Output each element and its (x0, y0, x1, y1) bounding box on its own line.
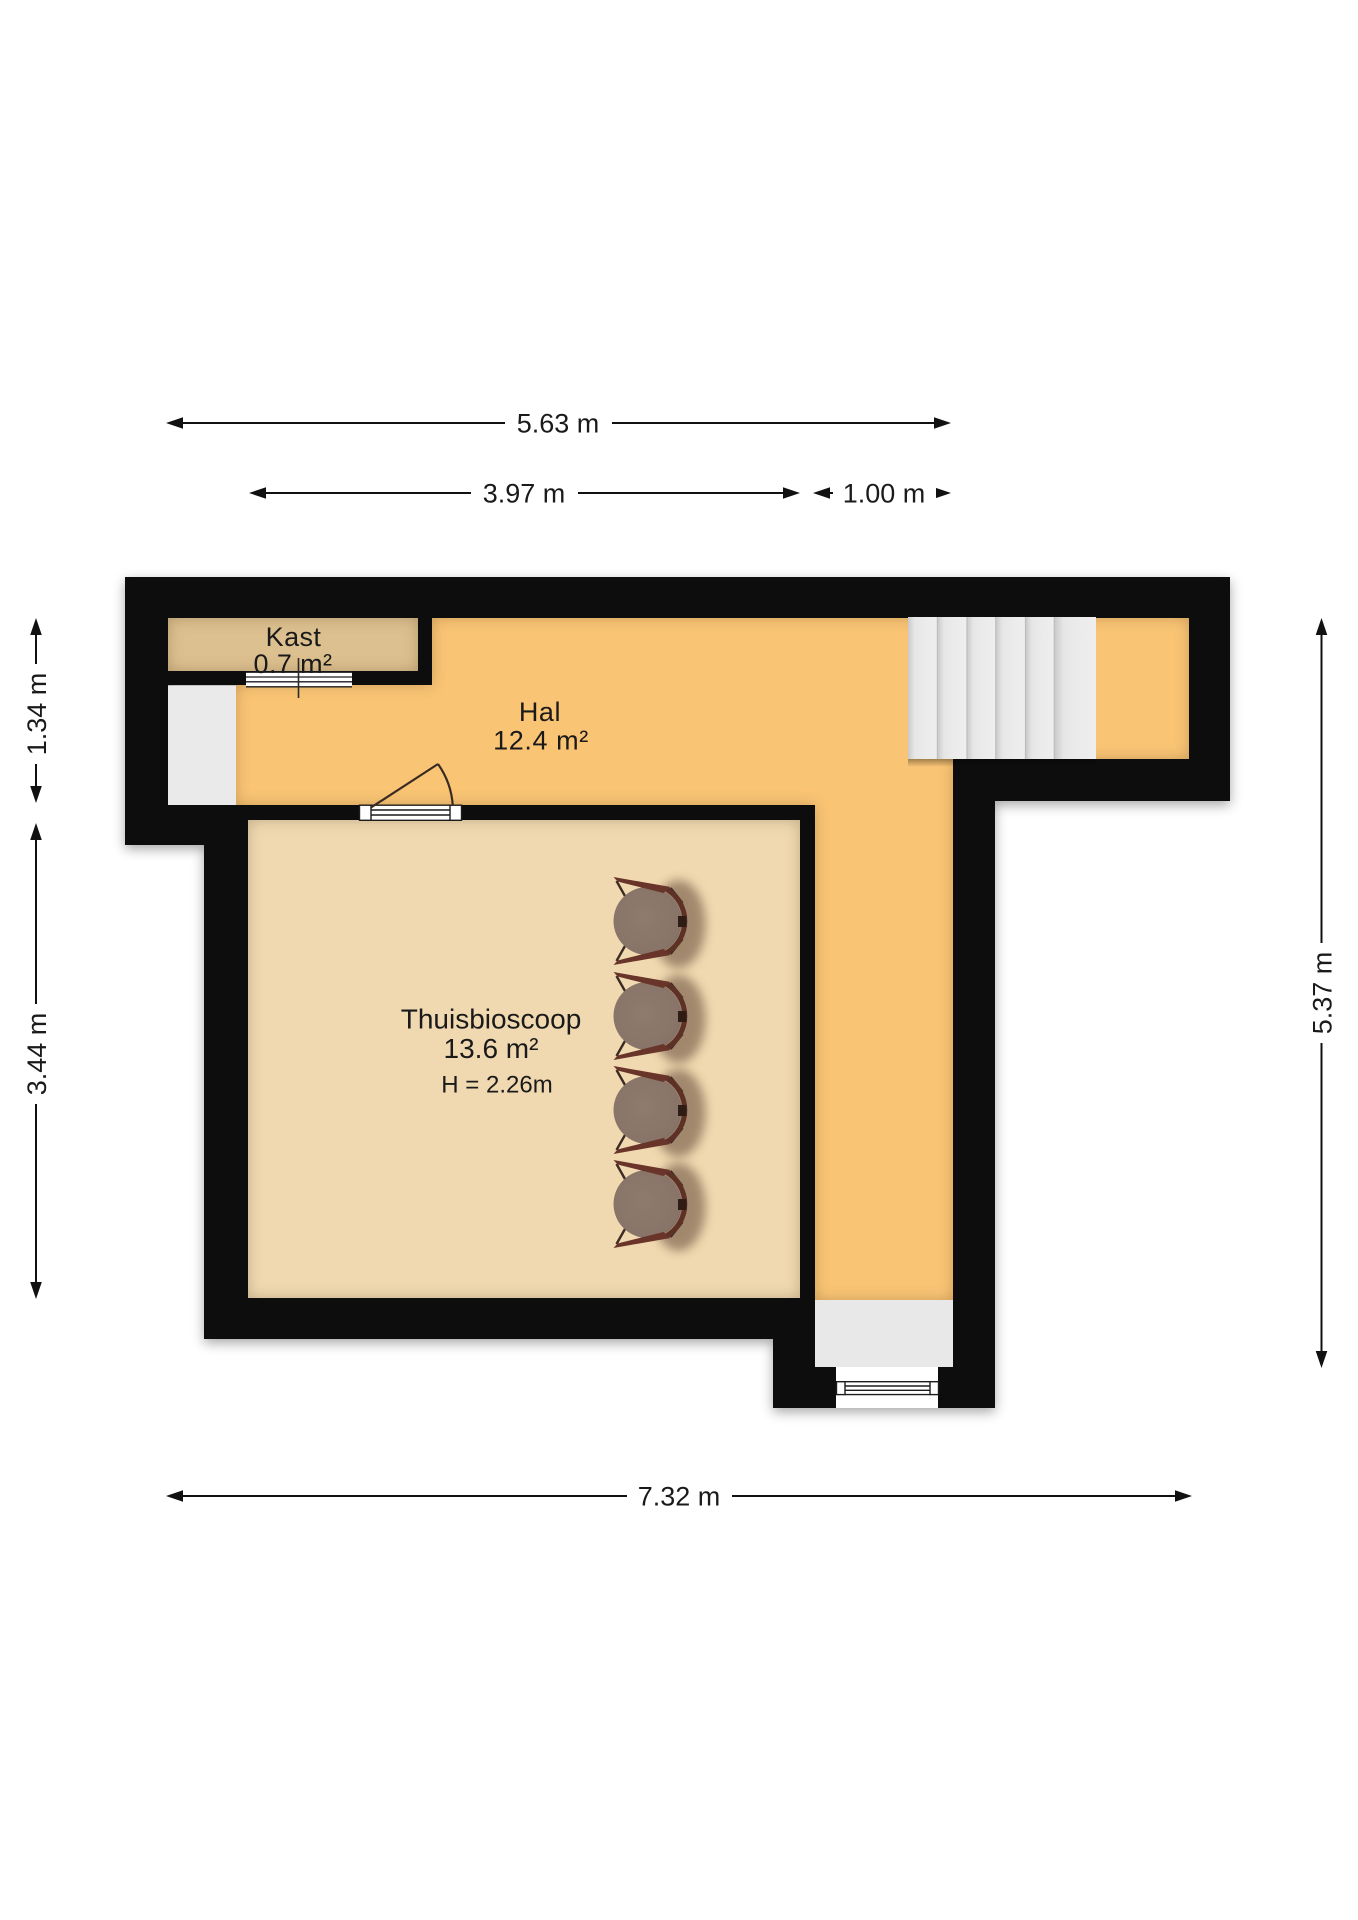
svg-text:5.37 m: 5.37 m (1308, 952, 1338, 1035)
svg-text:Thuisbioscoop: Thuisbioscoop (401, 1004, 582, 1035)
svg-text:7.32 m: 7.32 m (638, 1482, 721, 1512)
svg-text:3.44 m: 3.44 m (22, 1013, 52, 1096)
svg-text:12.4 m²: 12.4 m² (493, 726, 589, 756)
svg-text:3.97 m: 3.97 m (483, 479, 566, 509)
svg-text:5.63 m: 5.63 m (517, 409, 600, 439)
svg-text:H = 2.26m: H = 2.26m (441, 1072, 552, 1099)
svg-text:0.7 m²: 0.7 m² (254, 649, 333, 679)
svg-text:13.6 m²: 13.6 m² (444, 1033, 539, 1064)
svg-text:1.34 m: 1.34 m (22, 673, 52, 756)
svg-text:1.00 m: 1.00 m (843, 479, 926, 509)
svg-text:Kast: Kast (266, 622, 322, 652)
svg-text:Hal: Hal (519, 697, 561, 727)
